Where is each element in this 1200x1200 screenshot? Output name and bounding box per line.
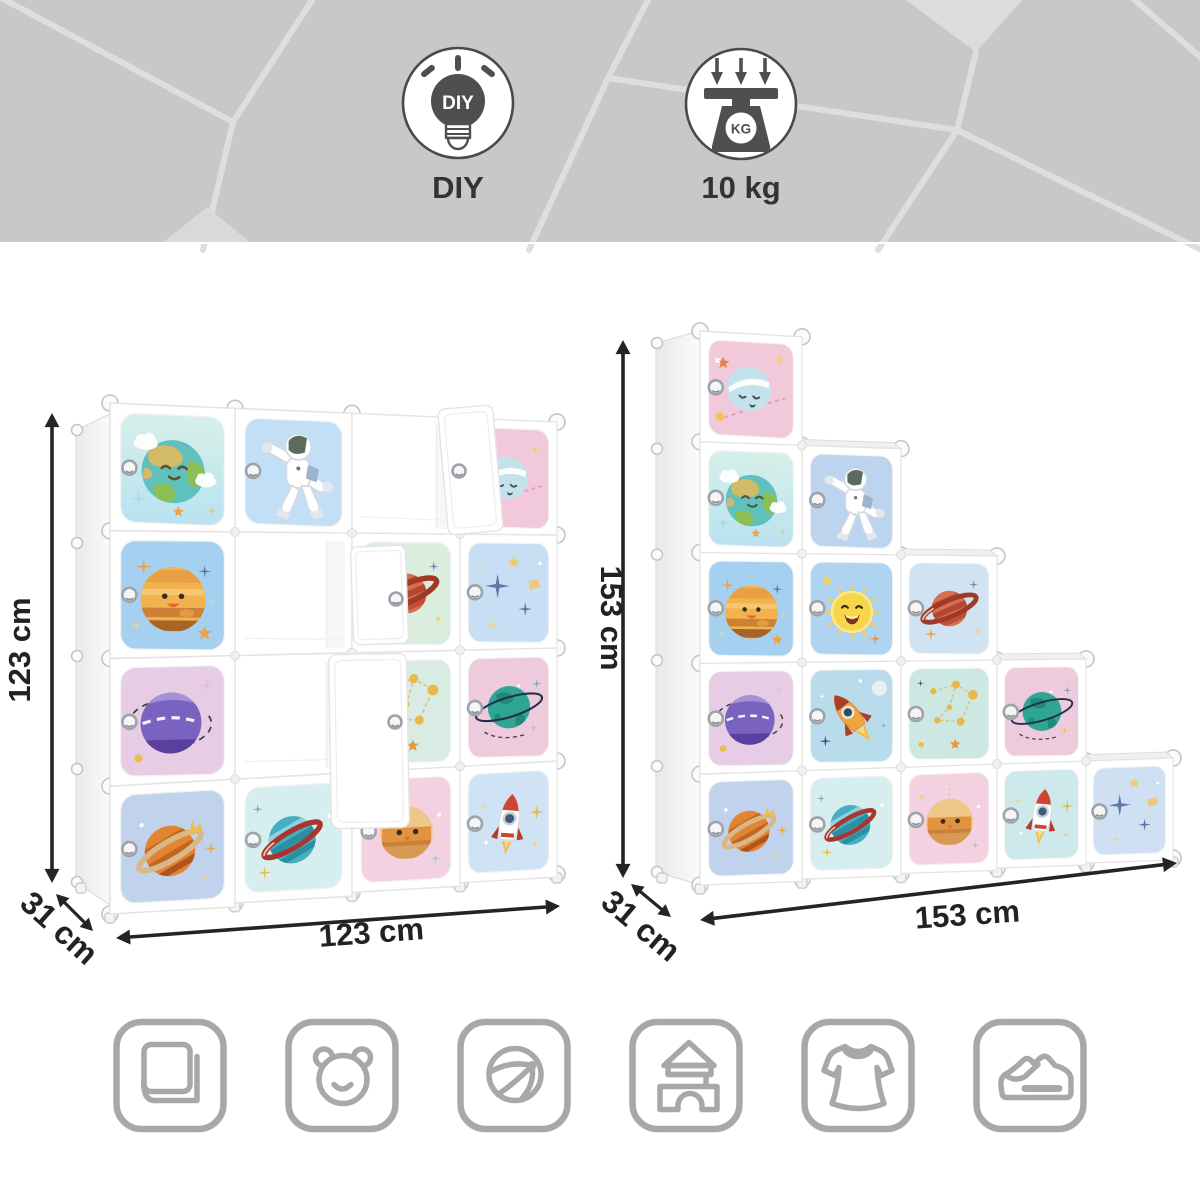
svg-text:123 cm: 123 cm bbox=[318, 911, 425, 954]
svg-text:153 cm: 153 cm bbox=[914, 893, 1021, 935]
svg-text:KG: KG bbox=[731, 122, 751, 137]
svg-text:123 cm: 123 cm bbox=[2, 597, 37, 702]
svg-text:DIY: DIY bbox=[432, 170, 484, 205]
svg-text:10 kg: 10 kg bbox=[701, 170, 780, 205]
svg-text:153 cm: 153 cm bbox=[594, 565, 629, 670]
svg-text:DIY: DIY bbox=[442, 93, 474, 114]
svg-text:31 cm: 31 cm bbox=[595, 883, 688, 969]
